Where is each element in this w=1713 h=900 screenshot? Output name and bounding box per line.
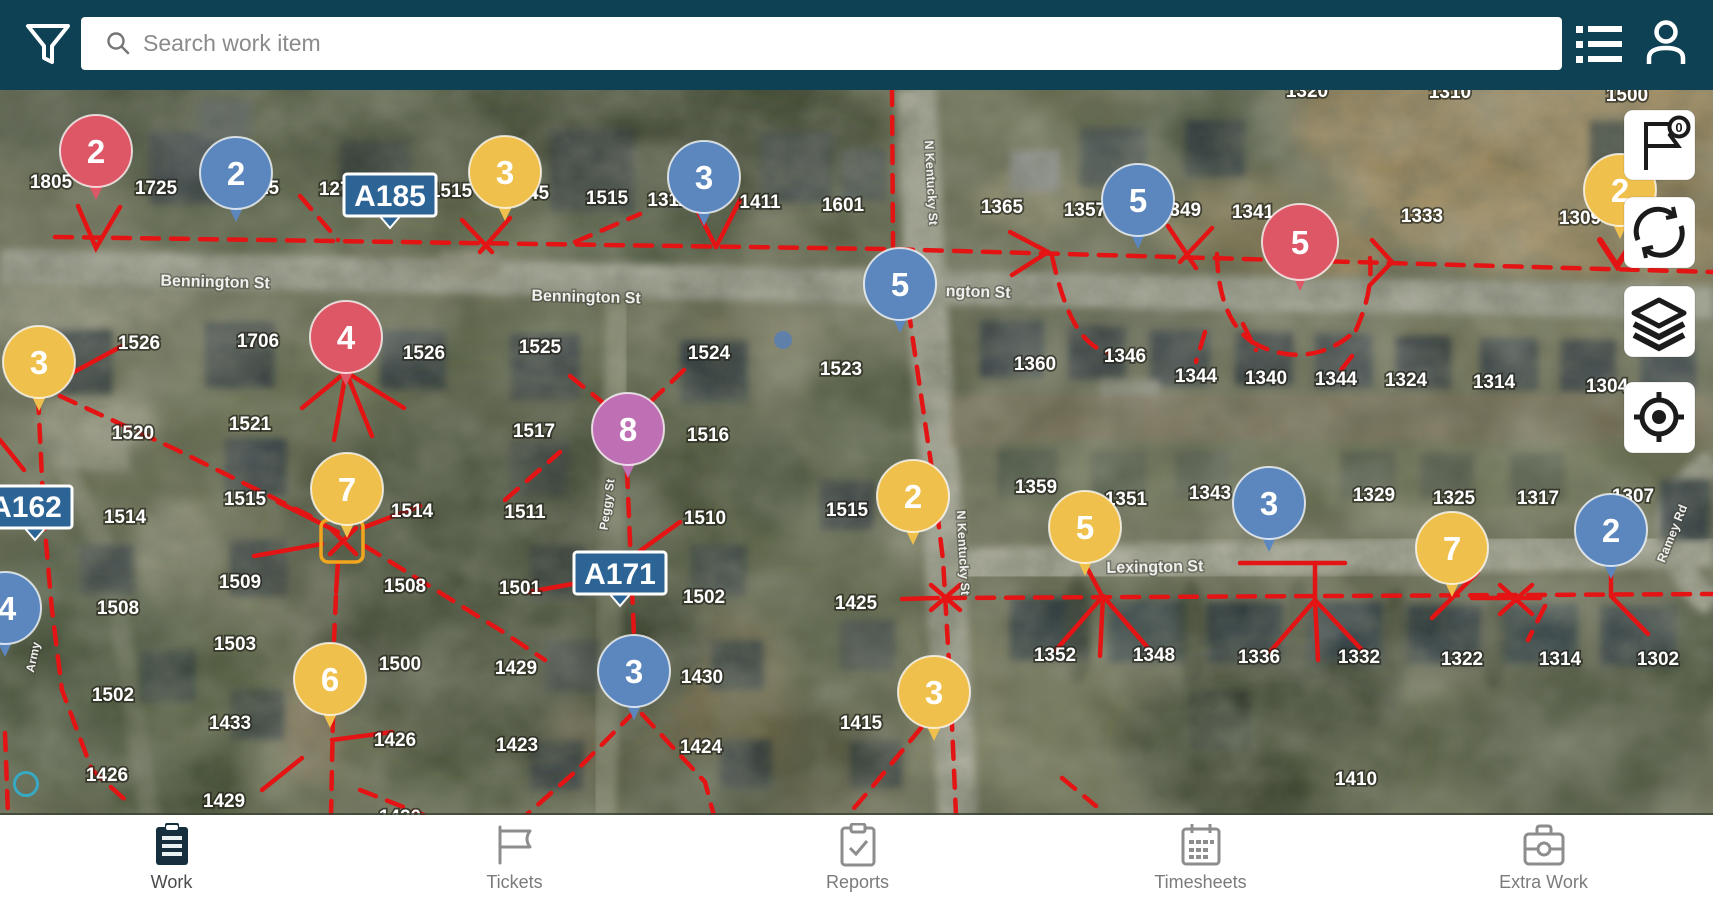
svg-text:1430: 1430: [681, 667, 723, 688]
svg-text:1304: 1304: [1586, 376, 1629, 397]
svg-text:1515: 1515: [826, 500, 869, 521]
svg-text:1429: 1429: [495, 658, 537, 679]
svg-text:1302: 1302: [1637, 649, 1679, 670]
svg-text:Bennington St: Bennington St: [531, 288, 641, 308]
svg-text:1508: 1508: [384, 576, 426, 597]
svg-text:1502: 1502: [92, 685, 134, 706]
svg-text:3: 3: [1260, 485, 1278, 522]
svg-text:1523: 1523: [820, 359, 862, 380]
svg-text:2: 2: [87, 133, 105, 170]
svg-text:1526: 1526: [403, 343, 445, 364]
svg-text:1425: 1425: [835, 593, 878, 614]
svg-text:1514: 1514: [391, 501, 434, 522]
svg-text:1515: 1515: [224, 489, 267, 510]
svg-text:5: 5: [1129, 182, 1147, 219]
svg-text:1423: 1423: [496, 735, 538, 756]
svg-text:1514: 1514: [104, 507, 147, 528]
svg-text:A171: A171: [584, 558, 656, 591]
svg-text:A162: A162: [0, 491, 62, 524]
svg-text:1344: 1344: [1175, 366, 1218, 387]
svg-text:1360: 1360: [1014, 354, 1056, 375]
svg-text:1426: 1426: [374, 730, 416, 751]
svg-text:1517: 1517: [513, 421, 555, 442]
svg-text:1706: 1706: [237, 331, 279, 352]
svg-text:Lexington St: Lexington St: [1106, 558, 1204, 577]
svg-text:1520: 1520: [112, 423, 154, 444]
svg-text:1526: 1526: [118, 333, 160, 354]
svg-text:1805: 1805: [30, 172, 73, 193]
svg-text:1500: 1500: [379, 654, 421, 675]
svg-text:1502: 1502: [683, 587, 725, 608]
svg-text:1433: 1433: [209, 713, 251, 734]
svg-text:1525: 1525: [519, 337, 562, 358]
svg-text:1325: 1325: [1433, 488, 1476, 509]
svg-text:1510: 1510: [684, 508, 726, 529]
svg-text:1310: 1310: [1429, 90, 1471, 103]
svg-text:2: 2: [1602, 512, 1620, 549]
svg-text:1336: 1336: [1238, 647, 1280, 668]
svg-text:1521: 1521: [229, 414, 272, 435]
svg-text:1320: 1320: [1286, 90, 1328, 102]
svg-text:1365: 1365: [981, 197, 1024, 218]
svg-text:3: 3: [625, 653, 643, 690]
svg-text:5: 5: [1291, 224, 1309, 261]
svg-text:1411: 1411: [739, 192, 781, 213]
svg-text:1344: 1344: [1315, 369, 1358, 390]
svg-text:1332: 1332: [1338, 647, 1380, 668]
svg-text:1343: 1343: [1189, 483, 1231, 504]
svg-text:1314: 1314: [1473, 372, 1516, 393]
svg-text:1725: 1725: [135, 178, 178, 199]
svg-text:3: 3: [496, 154, 514, 191]
svg-text:2: 2: [227, 155, 245, 192]
svg-text:1516: 1516: [687, 425, 729, 446]
svg-text:1515: 1515: [586, 188, 629, 209]
svg-text:4: 4: [337, 319, 356, 356]
svg-text:1426: 1426: [86, 765, 128, 786]
svg-text:1340: 1340: [1245, 368, 1287, 389]
svg-text:1348: 1348: [1133, 645, 1175, 666]
svg-text:1410: 1410: [1335, 769, 1377, 790]
svg-text:1357: 1357: [1064, 200, 1106, 221]
svg-text:1524: 1524: [688, 343, 731, 364]
svg-text:A185: A185: [354, 180, 426, 213]
svg-text:1352: 1352: [1034, 645, 1076, 666]
svg-text:1424: 1424: [680, 737, 723, 758]
svg-text:1415: 1415: [840, 713, 883, 734]
svg-text:2: 2: [904, 478, 922, 515]
svg-text:1501: 1501: [499, 578, 542, 599]
svg-text:1317: 1317: [1517, 488, 1559, 509]
svg-text:1509: 1509: [219, 572, 261, 593]
svg-text:4: 4: [0, 590, 17, 627]
svg-text:1359: 1359: [1015, 477, 1057, 498]
svg-text:1500: 1500: [1606, 90, 1648, 106]
svg-text:ngton St: ngton St: [945, 283, 1011, 302]
svg-text:1601: 1601: [822, 195, 865, 216]
svg-text:3: 3: [925, 674, 943, 711]
svg-text:1314: 1314: [1539, 649, 1582, 670]
svg-text:1329: 1329: [1353, 485, 1395, 506]
svg-text:Bennington St: Bennington St: [160, 273, 270, 293]
svg-text:1322: 1322: [1441, 649, 1483, 670]
svg-text:1503: 1503: [214, 634, 256, 655]
svg-text:1429: 1429: [203, 791, 245, 812]
svg-text:3: 3: [695, 159, 713, 196]
svg-text:7: 7: [1443, 530, 1461, 567]
svg-text:1346: 1346: [1104, 346, 1146, 367]
svg-text:1324: 1324: [1385, 370, 1428, 391]
svg-text:1333: 1333: [1401, 206, 1443, 227]
svg-text:3: 3: [30, 344, 48, 381]
svg-text:1508: 1508: [97, 598, 139, 619]
svg-text:8: 8: [619, 411, 637, 448]
svg-text:5: 5: [891, 266, 909, 303]
svg-text:7: 7: [338, 471, 356, 508]
svg-text:1511: 1511: [504, 502, 546, 523]
svg-text:5: 5: [1076, 509, 1094, 546]
svg-text:6: 6: [321, 661, 339, 698]
svg-text:0: 0: [1675, 120, 1682, 135]
